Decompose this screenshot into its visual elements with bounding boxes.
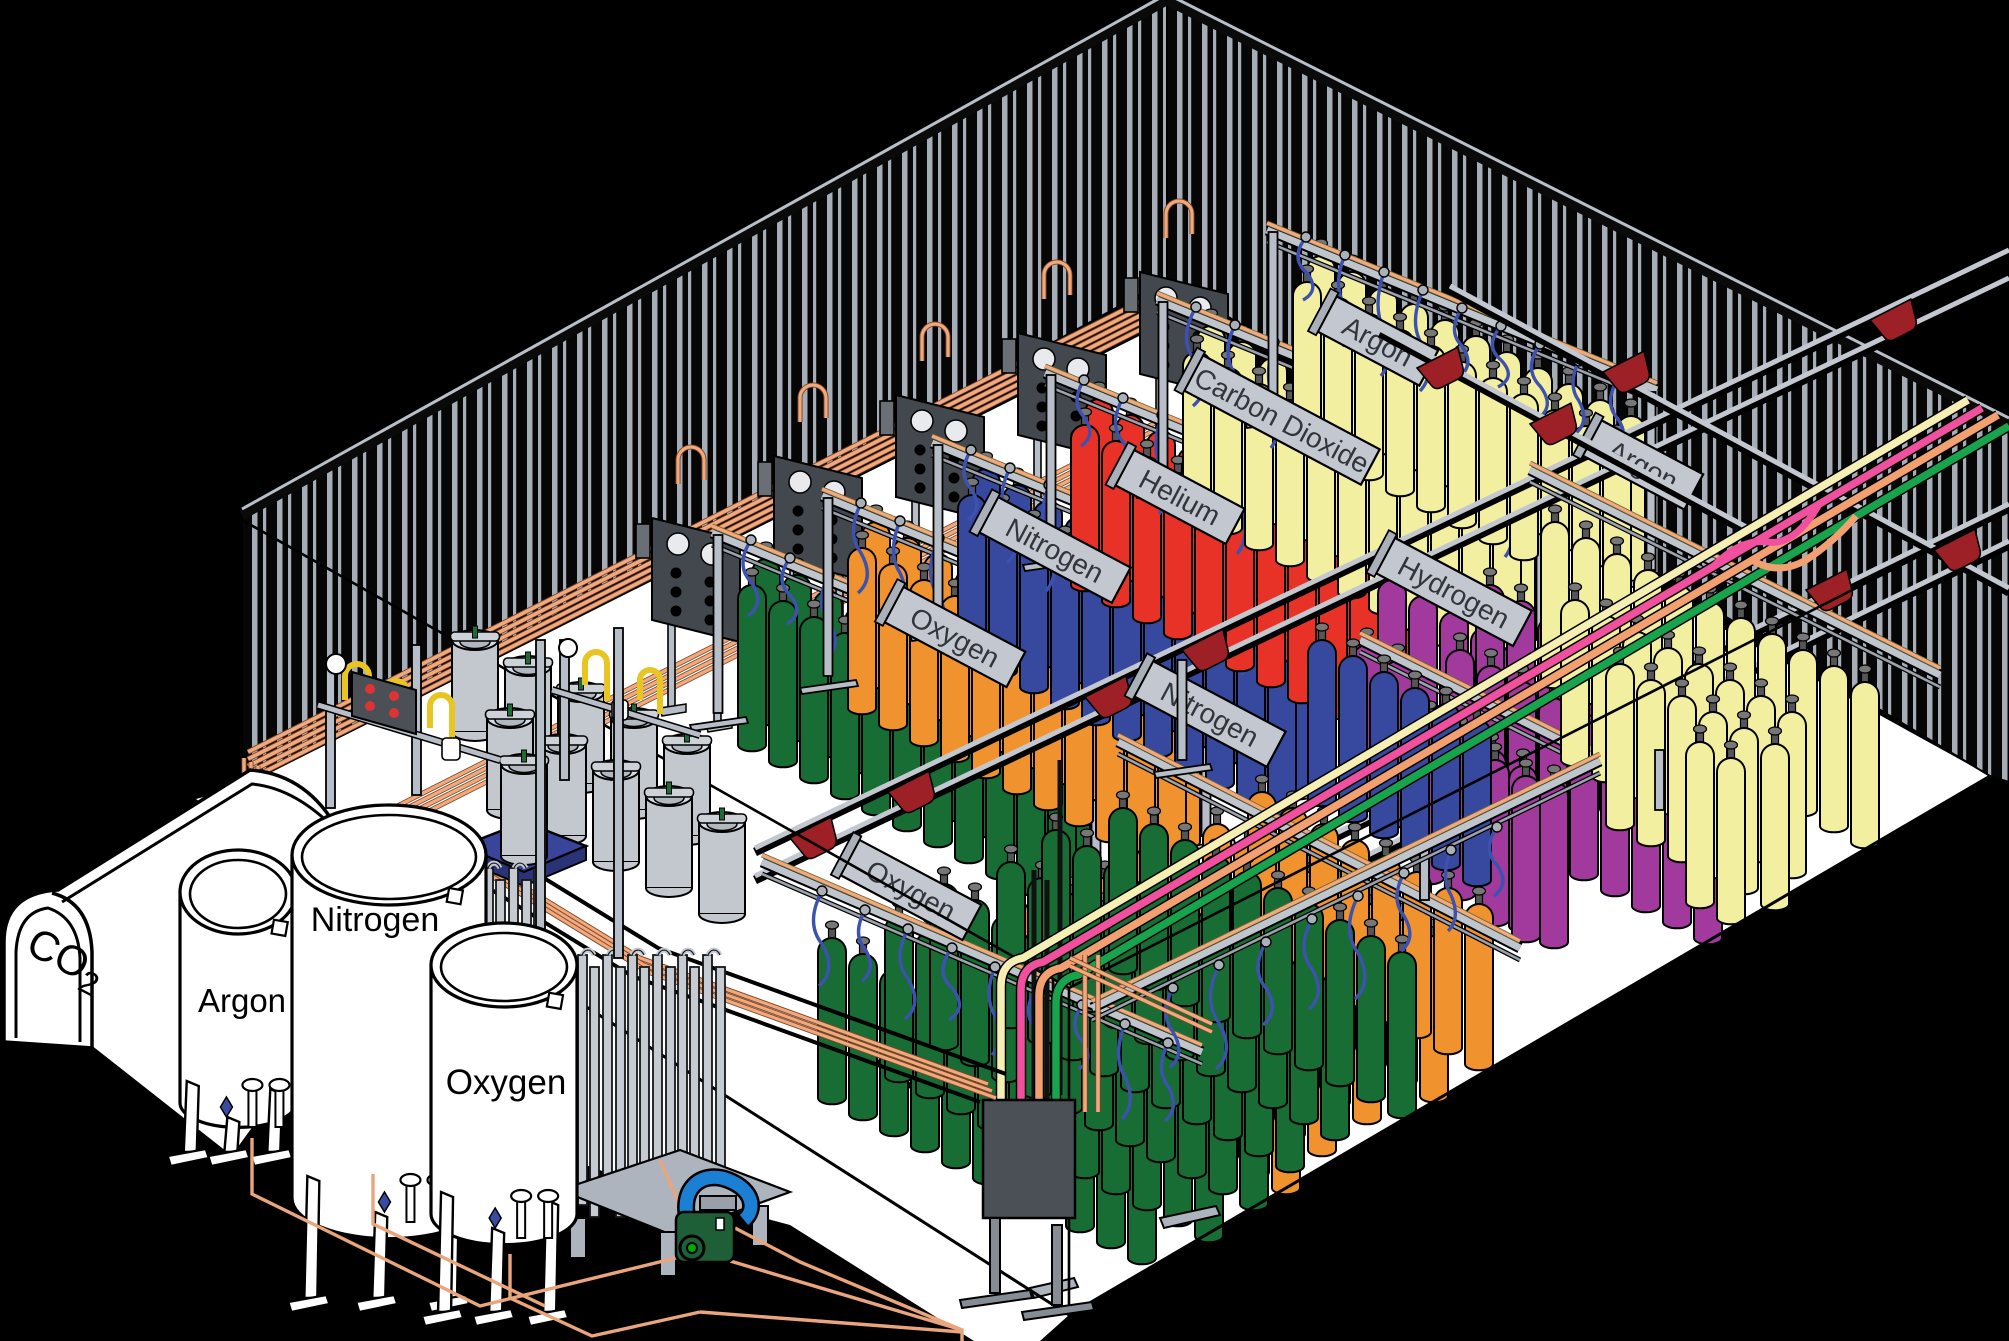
svg-text:Oxygen: Oxygen	[446, 1063, 567, 1102]
svg-text:Nitrogen: Nitrogen	[311, 901, 440, 939]
svg-text:Argon: Argon	[198, 982, 286, 1019]
